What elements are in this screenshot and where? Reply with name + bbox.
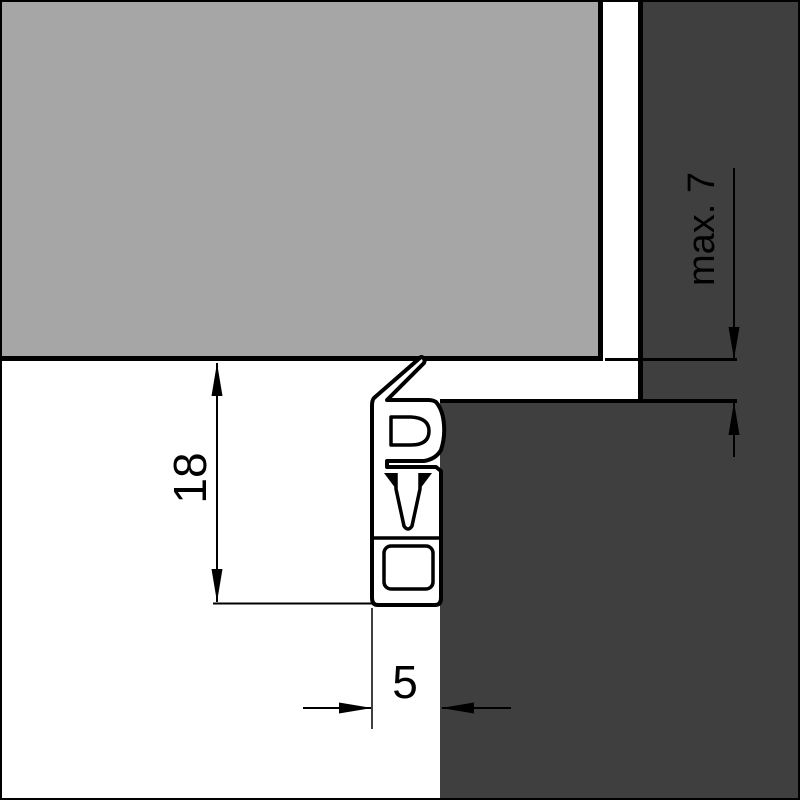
gap-divider-line [638,0,643,403]
dim-max7-top-extension-line [605,358,737,361]
sash-right-border-line [598,0,603,361]
seal-profile-cross-section-drawing: 18 5 max. 7 [0,0,800,800]
seal-d-chamber [391,417,429,445]
dim-18-label: 18 [164,452,216,503]
frame-lower-region [440,400,800,800]
dim-max7-label: max. 7 [681,172,723,286]
technical-drawing-canvas: 18 5 max. 7 [0,0,800,800]
frame-step-edge-line [440,399,737,403]
seal-bottom-chamber [384,546,433,589]
dim-5-label: 5 [392,656,418,708]
sash-bottom-border-line [0,356,603,361]
sash-panel [0,0,603,361]
